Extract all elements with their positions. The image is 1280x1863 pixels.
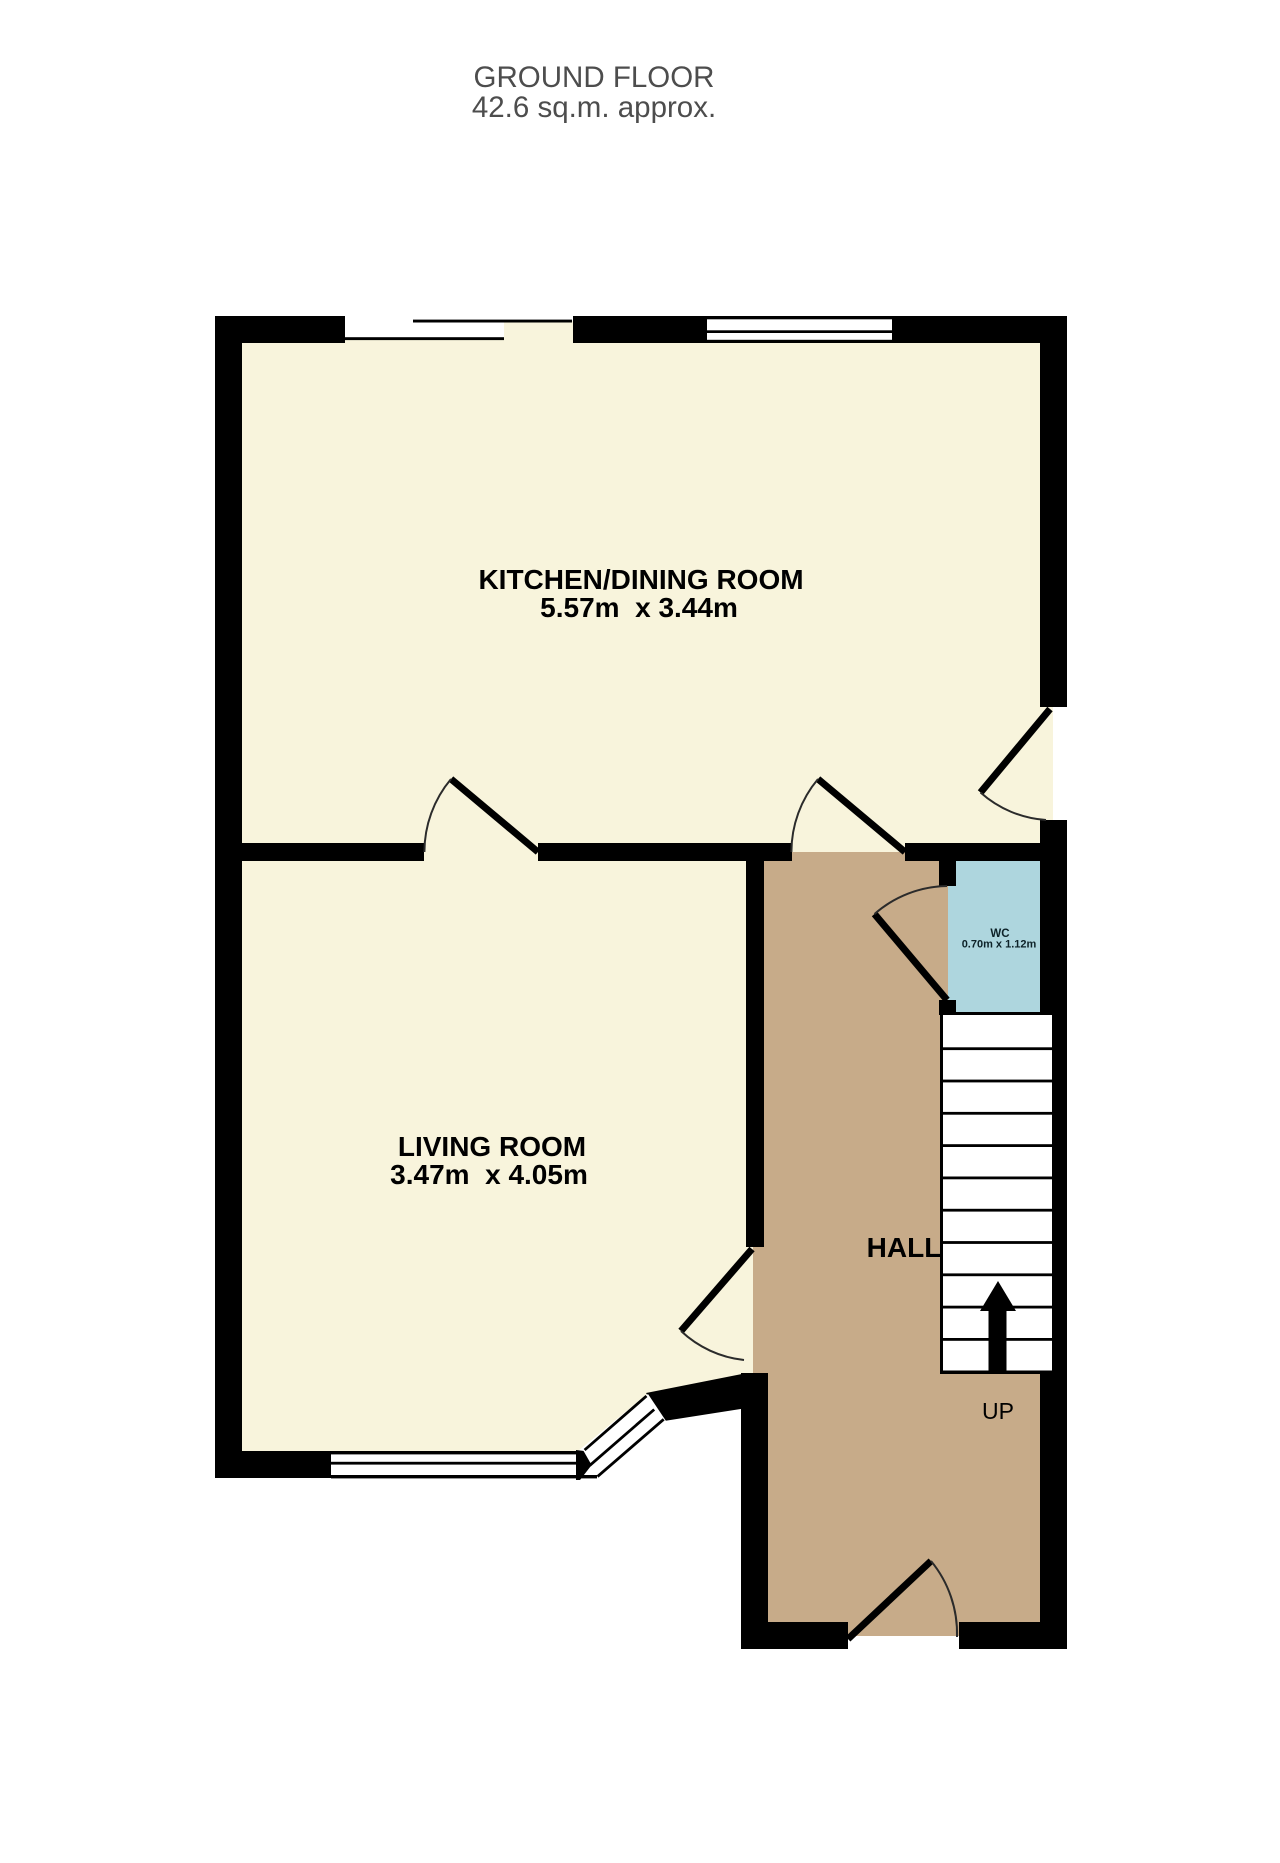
svg-text:3.47m x 4.05m: 3.47m x 4.05m [390,1159,588,1190]
svg-text:42.6 sq.m. approx.: 42.6 sq.m. approx. [472,91,716,124]
svg-text:LIVING ROOM: LIVING ROOM [398,1131,586,1162]
svg-text:0.70m x 1.12m: 0.70m x 1.12m [962,939,1037,951]
svg-text:HALL: HALL [867,1232,942,1263]
svg-text:KITCHEN/DINING ROOM: KITCHEN/DINING ROOM [478,564,803,595]
svg-text:GROUND FLOOR: GROUND FLOOR [474,61,715,94]
svg-text:5.57m x 3.44m: 5.57m x 3.44m [540,592,738,623]
svg-text:UP: UP [982,1398,1014,1424]
